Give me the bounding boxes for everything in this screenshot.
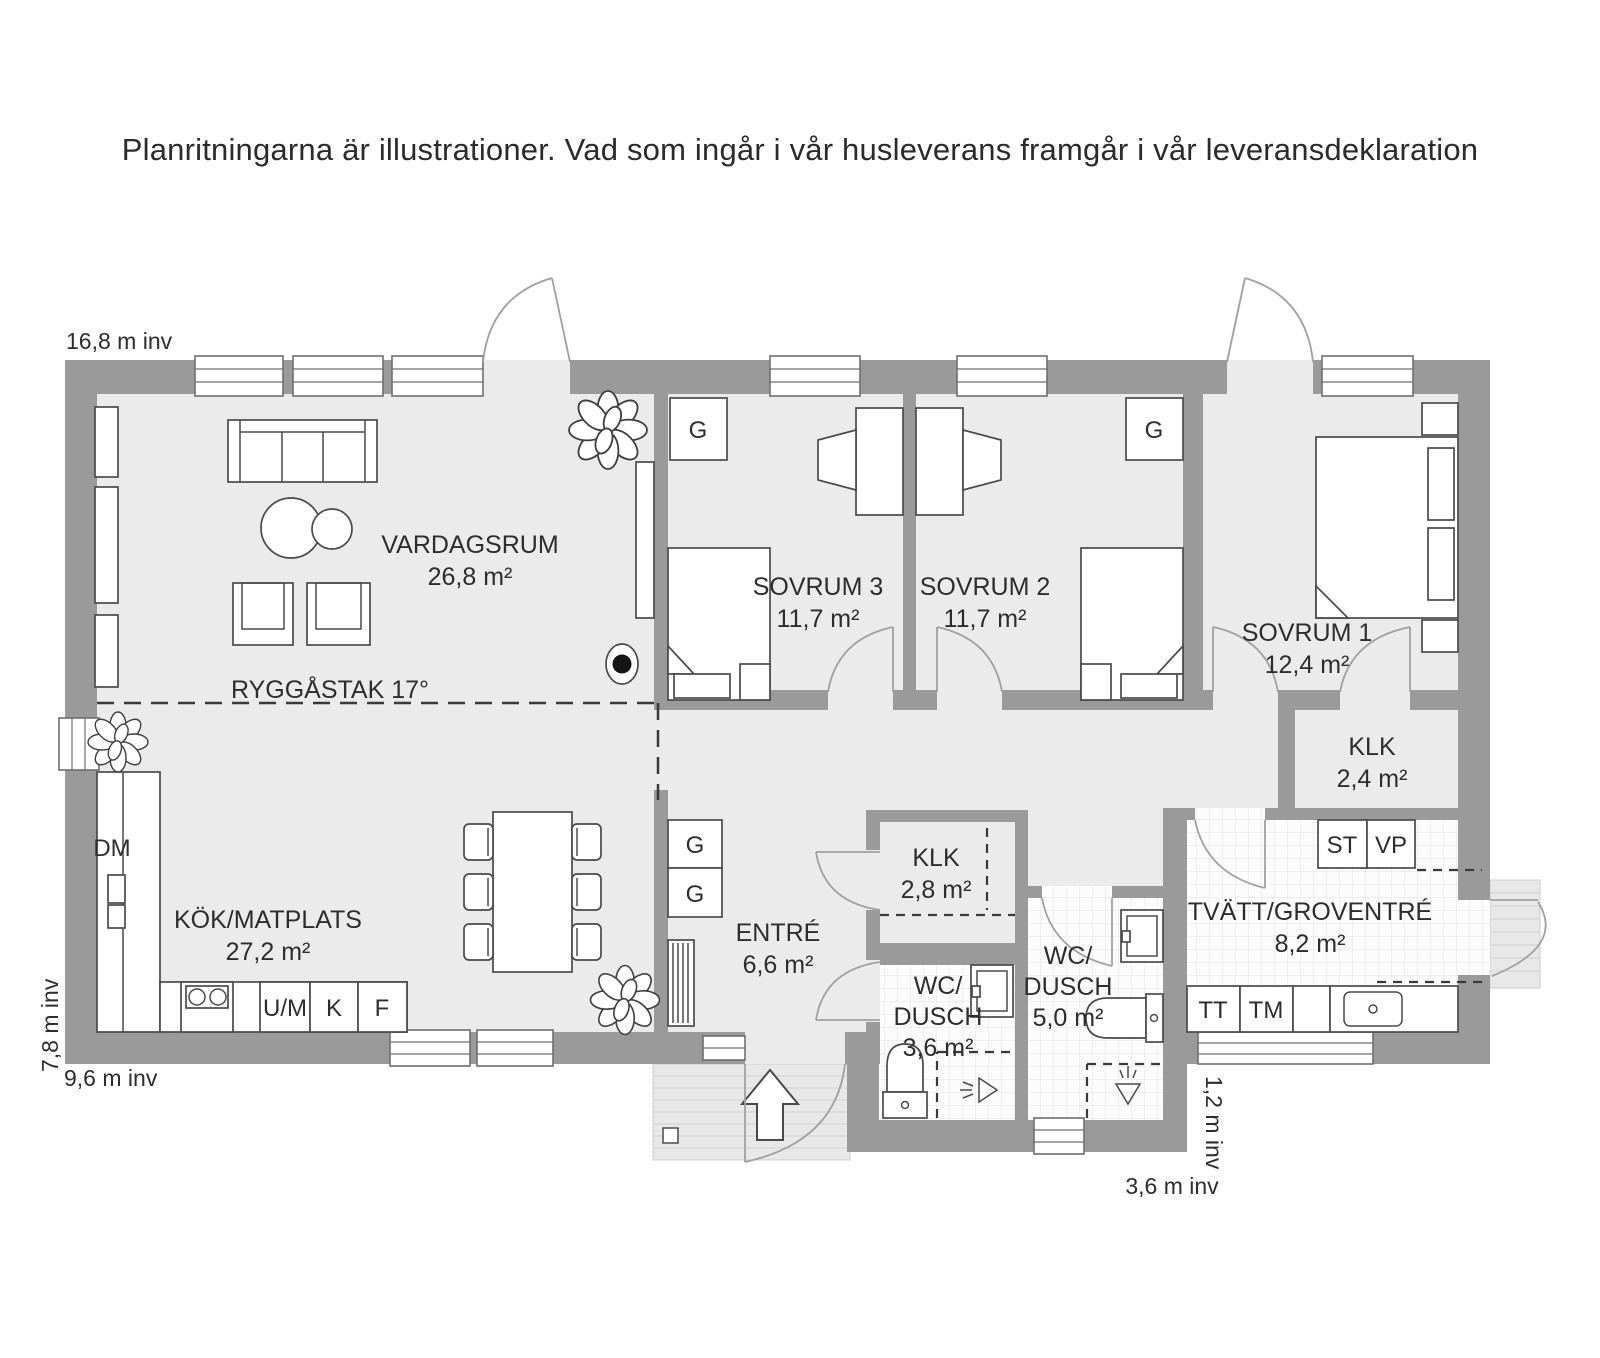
nightstand	[1422, 620, 1458, 652]
desk-chair	[818, 430, 856, 490]
nightstand	[1422, 403, 1458, 435]
dimension-bottom-middle: 3,6 m inv	[1125, 1173, 1219, 1199]
wardrobe-label: G	[686, 881, 705, 908]
room-area: 11,7 m²	[777, 605, 860, 633]
dishwasher-label: DM	[93, 835, 130, 862]
laundry-sink	[1330, 986, 1458, 1032]
window	[770, 356, 860, 396]
kitchen-counter	[97, 772, 160, 1032]
entrance-deck	[653, 1064, 850, 1160]
window	[1034, 1118, 1084, 1154]
ridge-label: RYGGÅSTAK 17°	[231, 674, 429, 704]
room-name: ENTRÉ	[736, 918, 821, 947]
room-area: 6,6 m²	[743, 951, 814, 979]
dimension-left: 7,8 m inv	[37, 978, 63, 1072]
sofa	[228, 420, 377, 482]
plant-icon	[569, 391, 647, 469]
wardrobe-label: G	[689, 417, 708, 444]
washbasin	[1121, 910, 1163, 962]
deck-lamp-icon	[663, 1128, 678, 1143]
room-name: KLK	[912, 844, 960, 872]
dimension-top: 16,8 m inv	[66, 328, 173, 354]
room-area: 26,8 m²	[428, 563, 513, 591]
room-area: 8,2 m²	[1275, 930, 1346, 958]
cabinet	[1293, 986, 1330, 1032]
washer-label: TM	[1249, 997, 1284, 1024]
bed	[1081, 548, 1183, 700]
cabinet-st-label: ST	[1327, 832, 1358, 859]
window	[392, 356, 483, 396]
window	[195, 356, 283, 396]
bookshelf	[95, 615, 118, 687]
entrance-sidelight-window	[703, 1036, 745, 1060]
room-name: SOVRUM 1	[1242, 619, 1373, 647]
armchair	[233, 583, 293, 645]
room-name: DUSCH	[1024, 973, 1113, 1001]
window	[477, 1030, 553, 1066]
stove	[181, 982, 233, 1032]
room-area: 3,6 m²	[903, 1034, 974, 1062]
patio-door	[1227, 278, 1313, 362]
room-name: TVÄTT/GROVENTRÉ	[1188, 897, 1432, 926]
desk-chair	[963, 430, 1001, 490]
room-name: DUSCH	[894, 1003, 983, 1031]
window	[390, 1030, 470, 1066]
window	[1198, 1032, 1373, 1064]
dryer-label: TT	[1198, 997, 1228, 1024]
room-area: 5,0 m²	[1033, 1004, 1104, 1032]
bookshelf	[636, 462, 654, 618]
bed	[668, 548, 770, 700]
room-area: 11,7 m²	[944, 605, 1027, 633]
room-name: VARDAGSRUM	[381, 531, 558, 559]
room-name: WC/	[1044, 942, 1093, 970]
oven-microwave-label: U/M	[263, 995, 307, 1022]
desk	[916, 408, 963, 515]
floor-plan-page: Planritningarna är illustrationer. Vad s…	[0, 0, 1600, 1358]
freezer-label: F	[375, 995, 390, 1022]
room-name: KLK	[1348, 733, 1396, 761]
room-area: 2,4 m²	[1337, 765, 1408, 793]
room-area: 2,8 m²	[901, 876, 972, 904]
bookshelf	[95, 407, 118, 477]
dimension-bottom-left: 9,6 m inv	[64, 1065, 158, 1091]
wardrobe-label: G	[686, 832, 705, 859]
window	[957, 356, 1047, 396]
fireplace-icon	[606, 644, 638, 684]
floor-plan-drawing: VARDAGSRUM 26,8 m² SOVRUM 3 11,7 m² SOVR…	[0, 0, 1600, 1358]
double-bed	[1316, 437, 1458, 618]
radiator	[668, 940, 694, 1026]
counter-drawer	[108, 905, 125, 928]
room-name: SOVRUM 3	[753, 573, 884, 601]
room-name: KÖK/MATPLATS	[174, 906, 362, 934]
desk	[856, 408, 903, 515]
window	[293, 356, 383, 396]
armchair	[307, 583, 370, 645]
room-area: 27,2 m²	[226, 938, 311, 966]
counter-drawer	[108, 875, 125, 903]
dining-table	[493, 812, 572, 972]
room-area: 12,4 m²	[1265, 651, 1350, 679]
fridge-label: K	[326, 995, 342, 1022]
patio-door	[483, 278, 570, 362]
window	[1322, 356, 1413, 396]
plant-icon	[88, 712, 148, 772]
coffee-table	[312, 509, 352, 549]
sovrum1-furniture	[1316, 403, 1458, 652]
plant-icon	[591, 966, 660, 1035]
dimension-right: 1,2 m inv	[1201, 1076, 1227, 1170]
room-name: SOVRUM 2	[920, 573, 1051, 601]
room-name: WC/	[914, 972, 963, 1000]
side-entrance-steps	[1490, 880, 1540, 988]
heat-pump-label: VP	[1375, 832, 1407, 859]
wardrobe-label: G	[1145, 417, 1164, 444]
bookshelf	[95, 487, 118, 603]
